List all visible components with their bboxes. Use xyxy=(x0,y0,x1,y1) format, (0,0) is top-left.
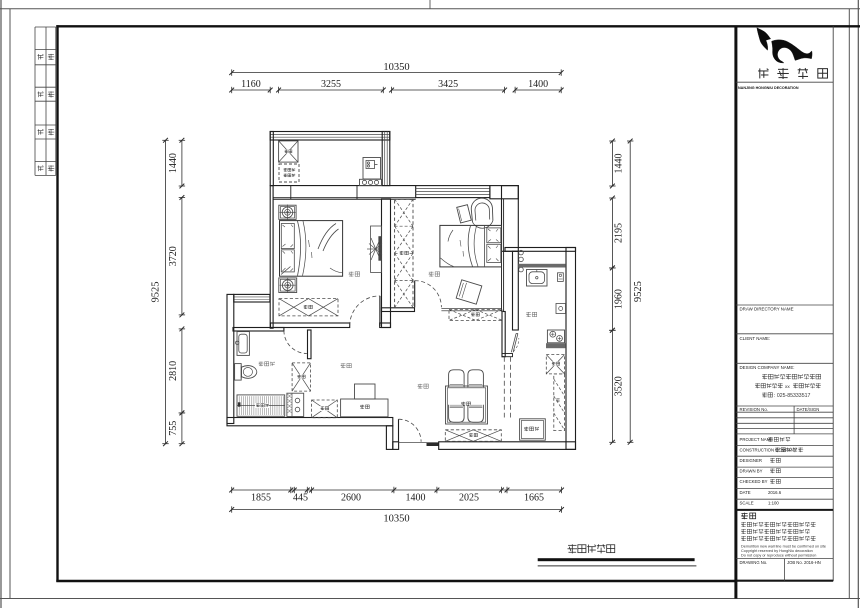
svg-text:Demolition new wall line must: Demolition new wall line must be confirm… xyxy=(741,545,826,549)
svg-text:1960: 1960 xyxy=(614,289,625,309)
svg-text:xx: xx xyxy=(785,385,790,390)
svg-text:CHECKED BY: CHECKED BY xyxy=(740,479,768,484)
svg-text:10350: 10350 xyxy=(383,514,409,525)
svg-text:2016.6: 2016.6 xyxy=(768,490,782,495)
svg-text:1855: 1855 xyxy=(251,493,271,504)
svg-text:JOB No. 2016-HN: JOB No. 2016-HN xyxy=(787,560,821,565)
svg-text:PROJECT NAME: PROJECT NAME xyxy=(740,437,774,442)
svg-text:DRAWING No.: DRAWING No. xyxy=(740,560,768,565)
svg-text:1400: 1400 xyxy=(406,493,426,504)
svg-text:: 025-85333517: : 025-85333517 xyxy=(774,393,810,399)
svg-text:1440: 1440 xyxy=(168,153,179,173)
svg-text:Copyright reserved by HongNiu: Copyright reserved by HongNiu decoration xyxy=(741,549,813,553)
svg-text:3520: 3520 xyxy=(614,376,625,396)
svg-text:DATE/SIGN: DATE/SIGN xyxy=(797,407,820,412)
svg-text:445: 445 xyxy=(293,493,308,504)
svg-text:DESIGNER: DESIGNER xyxy=(740,458,762,463)
svg-text:CONSTRUCTION COMPANY: CONSTRUCTION COMPANY xyxy=(740,448,797,453)
svg-text:3720: 3720 xyxy=(168,246,179,266)
svg-text:10350: 10350 xyxy=(383,62,409,73)
svg-text:2810: 2810 xyxy=(168,361,179,381)
svg-text:Do not copy or reproduce witho: Do not copy or reproduce without permiss… xyxy=(741,554,816,558)
svg-text:REVISION No.: REVISION No. xyxy=(740,407,768,412)
svg-text:DRAWN BY: DRAWN BY xyxy=(740,469,763,474)
svg-text:3255: 3255 xyxy=(321,79,341,90)
svg-text:755: 755 xyxy=(168,421,179,436)
svg-text:2025: 2025 xyxy=(459,493,479,504)
svg-text:DRAW DIRECTORY NAME: DRAW DIRECTORY NAME xyxy=(740,307,794,312)
svg-text:NANJING HONGNIU DECORATION: NANJING HONGNIU DECORATION xyxy=(738,86,799,90)
svg-text:DATE: DATE xyxy=(740,490,751,495)
svg-text:1160: 1160 xyxy=(241,79,261,90)
svg-text:9525: 9525 xyxy=(633,281,644,302)
svg-text:CLIENT NAME:: CLIENT NAME: xyxy=(740,336,771,341)
svg-text:1:100: 1:100 xyxy=(768,501,779,506)
svg-text:2195: 2195 xyxy=(614,223,625,243)
svg-text:1665: 1665 xyxy=(524,493,544,504)
svg-text:9525: 9525 xyxy=(151,282,162,303)
svg-text:DESIGN COMPANY NAME:: DESIGN COMPANY NAME: xyxy=(740,365,795,370)
svg-text:3425: 3425 xyxy=(438,79,458,90)
svg-text:2600: 2600 xyxy=(341,493,361,504)
svg-text:1440: 1440 xyxy=(614,154,625,174)
svg-text:1400: 1400 xyxy=(528,79,548,90)
svg-text:SCALE: SCALE xyxy=(740,500,754,505)
